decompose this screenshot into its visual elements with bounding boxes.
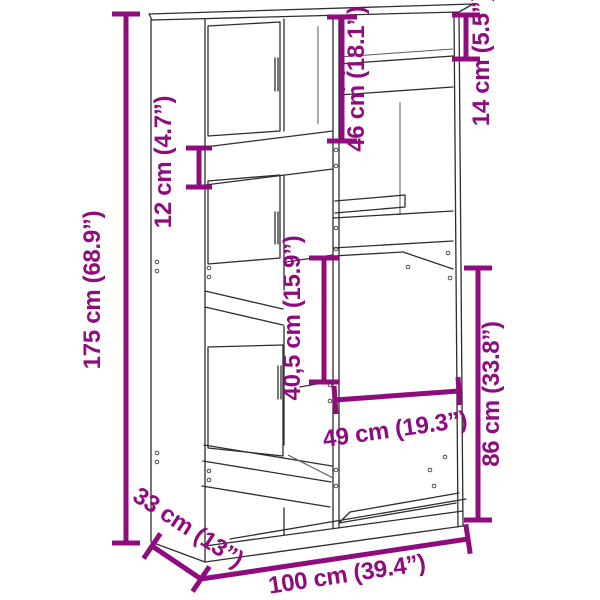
top-left-door [208,22,280,136]
lower-left-door [208,345,283,456]
left-back-shelf [205,291,283,325]
right-back-shelf [335,195,405,213]
dimension-left-slot: 12 cm (4.7”) [150,96,212,228]
bookcase-drawing [149,4,473,562]
left-slot-label: 12 cm (4.7”) [150,96,177,228]
lower-right-width-line [334,377,460,414]
dimension-width: 100 cm (39.4”) [201,524,470,599]
height-dimension-line [112,14,140,543]
furniture-dimension-diagram: 175 cm (68.9”) 46 cm (18.1”) 14 cm (5.5”… [0,0,600,600]
top-left-door-handle [275,58,278,91]
depth-dimension-label: 33 cm (13”) [128,482,248,573]
right-middle-shelf [333,211,453,248]
dimension-lower-right-width: 49 cm (19.3”) [321,377,469,453]
top-right-opening-label: 14 cm (5.5”) [468,0,495,126]
lower-right-opening-label: 86 cm (33.8”) [478,321,505,467]
dimension-lower-right-opening: 86 cm (33.8”) [464,268,505,520]
cabinet-top-panel [149,4,473,20]
height-dimension-label: 175 cm (68.9”) [79,211,106,370]
middle-floor-edge [288,455,333,478]
middle-left-door [208,175,280,264]
lower-right-width-label: 49 cm (19.3”) [321,406,469,453]
middle-opening-line [309,258,339,382]
dimension-middle-opening: 40,5 cm (15.9”) [279,236,339,401]
cabinet-right-side [454,12,463,527]
diagram-stage: 175 cm (68.9”) 46 cm (18.1”) 14 cm (5.5”… [0,0,600,600]
left-slot-shelves [205,131,333,185]
right-floor [339,493,459,523]
dimension-height: 175 cm (68.9”) [79,14,140,543]
middle-opening-label: 40,5 cm (15.9”) [279,236,306,401]
upper-left-opening-label: 46 cm (18.1”) [343,6,370,152]
right-shelf-underside [333,252,453,269]
middle-left-door-handle [275,212,278,244]
